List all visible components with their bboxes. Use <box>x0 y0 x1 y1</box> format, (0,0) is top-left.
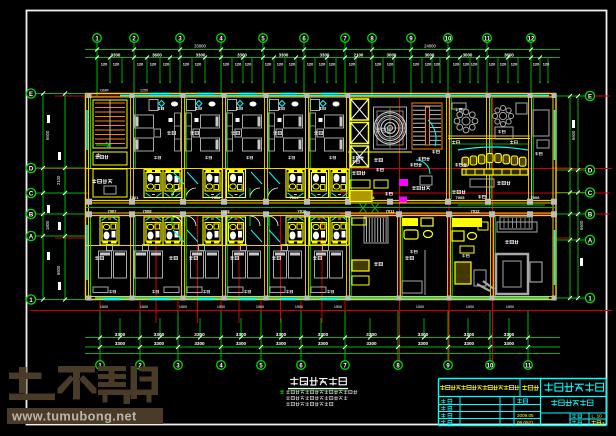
svg-text:A: A <box>29 235 34 241</box>
svg-text:7007: 7007 <box>108 209 118 214</box>
svg-text:3300: 3300 <box>154 332 165 338</box>
svg-text:1250: 1250 <box>140 89 148 93</box>
svg-text:120: 120 <box>463 62 470 67</box>
svg-text:6600: 6600 <box>571 130 576 140</box>
svg-text:B: B <box>29 213 34 219</box>
svg-text:3300: 3300 <box>115 341 126 346</box>
svg-text:3300: 3300 <box>115 332 126 338</box>
svg-text:www.tumubong.net: www.tumubong.net <box>11 409 137 424</box>
svg-text:3600: 3600 <box>152 53 162 58</box>
svg-text:1500: 1500 <box>466 305 474 309</box>
svg-text:1800: 1800 <box>45 220 50 230</box>
svg-text:12: 12 <box>528 37 535 43</box>
svg-text:120: 120 <box>307 62 314 67</box>
svg-text:7009: 7009 <box>221 209 231 214</box>
svg-text:2009.05: 2009.05 <box>517 413 534 418</box>
svg-text:B: B <box>588 213 593 219</box>
svg-text:C: C <box>29 192 34 198</box>
svg-text:10: 10 <box>445 37 452 43</box>
svg-text:120: 120 <box>511 62 518 67</box>
svg-text:1500: 1500 <box>334 305 342 309</box>
svg-text:120: 120 <box>375 62 382 67</box>
svg-text:3300: 3300 <box>464 341 475 346</box>
svg-text:3300: 3300 <box>464 332 475 338</box>
svg-text:120: 120 <box>235 62 242 67</box>
svg-text:120: 120 <box>329 62 336 67</box>
svg-text:3300: 3300 <box>279 53 289 58</box>
svg-text:2100: 2100 <box>56 175 61 185</box>
svg-text:3300: 3300 <box>237 53 247 58</box>
svg-text:3300: 3300 <box>196 53 206 58</box>
svg-text:3300: 3300 <box>418 332 429 338</box>
svg-text:1500: 1500 <box>140 305 148 309</box>
svg-text:120: 120 <box>387 62 394 67</box>
svg-text:120: 120 <box>113 62 120 67</box>
svg-text:1500: 1500 <box>256 305 264 309</box>
svg-text:6600: 6600 <box>56 265 61 275</box>
svg-text:3000: 3000 <box>463 53 473 58</box>
svg-text:7011: 7011 <box>386 209 395 214</box>
svg-text:3600: 3600 <box>504 53 514 58</box>
svg-text:3300: 3300 <box>194 332 205 338</box>
svg-text:09.0521: 09.0521 <box>517 420 534 425</box>
svg-text:7008: 7008 <box>143 209 153 214</box>
svg-text:10: 10 <box>487 364 494 370</box>
svg-text:120: 120 <box>183 62 190 67</box>
svg-text:7006: 7006 <box>531 195 541 200</box>
svg-text:120: 120 <box>543 62 550 67</box>
svg-text:3300: 3300 <box>236 332 247 338</box>
svg-text:A: A <box>588 239 593 245</box>
svg-text:7005: 7005 <box>456 195 466 200</box>
svg-text:D: D <box>588 169 593 175</box>
svg-text:-: - <box>304 378 307 388</box>
svg-text:3300: 3300 <box>318 332 329 338</box>
svg-text:11: 11 <box>484 37 491 43</box>
svg-text:120: 120 <box>137 62 144 67</box>
svg-text:3300: 3300 <box>276 341 287 346</box>
svg-text:3300: 3300 <box>236 341 247 346</box>
svg-text:120: 120 <box>265 62 272 67</box>
svg-text:1500: 1500 <box>506 305 514 309</box>
svg-text:3300: 3300 <box>154 341 165 346</box>
svg-text:120: 120 <box>453 62 460 67</box>
svg-text:6600: 6600 <box>45 130 50 140</box>
svg-text:3000: 3000 <box>425 53 435 58</box>
svg-text:120: 120 <box>500 62 507 67</box>
svg-text:3300: 3300 <box>320 53 330 58</box>
svg-text:3300: 3300 <box>366 341 377 346</box>
svg-text:7012: 7012 <box>471 209 481 214</box>
svg-text:GMF: GMF <box>100 88 109 93</box>
svg-text:120: 120 <box>349 62 356 67</box>
svg-text:-7: -7 <box>601 421 605 426</box>
svg-text:120: 120 <box>471 62 478 67</box>
svg-text:11: 11 <box>525 364 532 370</box>
svg-text:120: 120 <box>489 62 496 67</box>
svg-text:1500: 1500 <box>416 305 424 309</box>
svg-text:3300: 3300 <box>504 341 515 346</box>
svg-text:120: 120 <box>425 62 432 67</box>
svg-text:7001: 7001 <box>130 195 140 200</box>
svg-text:120: 120 <box>434 62 441 67</box>
svg-text:120: 120 <box>533 62 540 67</box>
svg-text:24000: 24000 <box>424 44 436 49</box>
svg-text:1500: 1500 <box>217 305 225 309</box>
svg-text:C: C <box>588 191 593 197</box>
svg-text:120: 120 <box>195 62 202 67</box>
svg-text:120: 120 <box>289 62 296 67</box>
svg-text:33000: 33000 <box>194 44 206 49</box>
svg-text:120: 120 <box>223 62 230 67</box>
svg-text:D: D <box>29 167 34 173</box>
svg-text:3000: 3000 <box>387 53 397 58</box>
svg-text:E: E <box>588 95 592 101</box>
svg-text:3300: 3300 <box>366 332 377 338</box>
svg-text:2100: 2100 <box>354 53 364 58</box>
svg-text:3300: 3300 <box>418 341 429 346</box>
svg-text:7002: 7002 <box>212 195 222 200</box>
svg-text:3300: 3300 <box>318 341 329 346</box>
svg-text:3300: 3300 <box>276 332 287 338</box>
svg-text:L. 10: L. 10 <box>592 414 603 419</box>
svg-text:1500: 1500 <box>295 305 303 309</box>
svg-text:E: E <box>29 92 33 98</box>
svg-text:120: 120 <box>150 62 157 67</box>
svg-text:3300: 3300 <box>111 53 121 58</box>
svg-text:120: 120 <box>413 62 420 67</box>
svg-text:3300: 3300 <box>194 341 205 346</box>
svg-text:120: 120 <box>319 62 326 67</box>
svg-text:1500: 1500 <box>100 305 108 309</box>
svg-text:120: 120 <box>277 62 284 67</box>
svg-text:120: 120 <box>163 62 170 67</box>
svg-text:6600: 6600 <box>579 220 584 230</box>
svg-text:7003: 7003 <box>290 195 300 200</box>
svg-text:1500: 1500 <box>179 305 187 309</box>
svg-text:120: 120 <box>245 62 252 67</box>
svg-text:120: 120 <box>101 62 108 67</box>
svg-text:3300: 3300 <box>504 332 515 338</box>
svg-text:7010: 7010 <box>298 209 308 214</box>
